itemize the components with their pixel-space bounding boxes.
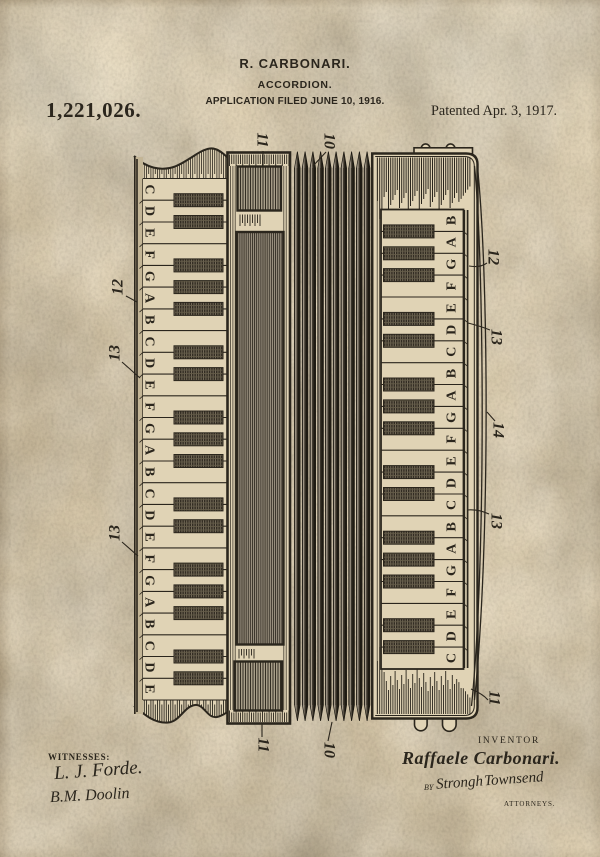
svg-text:F: F bbox=[142, 402, 157, 411]
svg-text:A: A bbox=[142, 445, 157, 456]
svg-text:E: E bbox=[142, 380, 157, 389]
svg-text:B: B bbox=[445, 522, 460, 531]
svg-text:G: G bbox=[142, 423, 157, 434]
svg-text:11: 11 bbox=[253, 132, 270, 147]
svg-text:F: F bbox=[445, 435, 460, 444]
svg-text:13: 13 bbox=[487, 513, 504, 529]
svg-text:A: A bbox=[445, 390, 460, 401]
svg-text:D: D bbox=[445, 631, 460, 641]
svg-text:B: B bbox=[445, 216, 460, 225]
svg-text:12: 12 bbox=[484, 249, 501, 265]
svg-text:C: C bbox=[445, 500, 460, 510]
svg-text:F: F bbox=[142, 250, 157, 259]
svg-text:B: B bbox=[445, 369, 460, 378]
svg-text:F: F bbox=[142, 555, 157, 564]
svg-text:C: C bbox=[142, 336, 157, 346]
svg-text:G: G bbox=[445, 412, 460, 423]
svg-text:G: G bbox=[142, 575, 157, 586]
svg-text:E: E bbox=[445, 303, 460, 312]
svg-text:D: D bbox=[142, 510, 157, 520]
svg-text:E: E bbox=[142, 684, 157, 693]
svg-text:C: C bbox=[445, 653, 460, 663]
svg-text:C: C bbox=[142, 184, 157, 194]
svg-text:D: D bbox=[142, 206, 157, 216]
svg-text:B: B bbox=[142, 467, 157, 476]
svg-text:D: D bbox=[445, 478, 460, 488]
svg-text:13: 13 bbox=[107, 345, 124, 361]
svg-text:11: 11 bbox=[254, 737, 271, 752]
svg-text:A: A bbox=[445, 236, 460, 247]
svg-text:D: D bbox=[445, 325, 460, 335]
svg-text:13: 13 bbox=[487, 329, 504, 345]
svg-text:E: E bbox=[142, 532, 157, 541]
svg-text:B: B bbox=[142, 619, 157, 628]
svg-text:13: 13 bbox=[107, 525, 124, 541]
svg-text:G: G bbox=[445, 565, 460, 576]
svg-text:E: E bbox=[445, 456, 460, 465]
svg-text:C: C bbox=[142, 489, 157, 499]
svg-text:C: C bbox=[142, 641, 157, 651]
svg-text:A: A bbox=[142, 293, 157, 304]
svg-text:F: F bbox=[445, 588, 460, 597]
svg-text:G: G bbox=[445, 259, 460, 270]
svg-text:A: A bbox=[142, 597, 157, 608]
svg-text:E: E bbox=[142, 228, 157, 237]
svg-text:B: B bbox=[142, 315, 157, 324]
svg-text:A: A bbox=[445, 543, 460, 554]
svg-text:D: D bbox=[142, 662, 157, 672]
svg-text:11: 11 bbox=[485, 690, 502, 705]
svg-text:10: 10 bbox=[320, 133, 337, 149]
svg-text:14: 14 bbox=[489, 422, 506, 438]
svg-text:E: E bbox=[445, 610, 460, 619]
svg-text:D: D bbox=[142, 358, 157, 368]
svg-text:C: C bbox=[445, 347, 460, 357]
svg-text:F: F bbox=[445, 282, 460, 291]
svg-text:12: 12 bbox=[110, 279, 127, 295]
svg-text:10: 10 bbox=[320, 742, 337, 758]
svg-text:G: G bbox=[142, 271, 157, 282]
